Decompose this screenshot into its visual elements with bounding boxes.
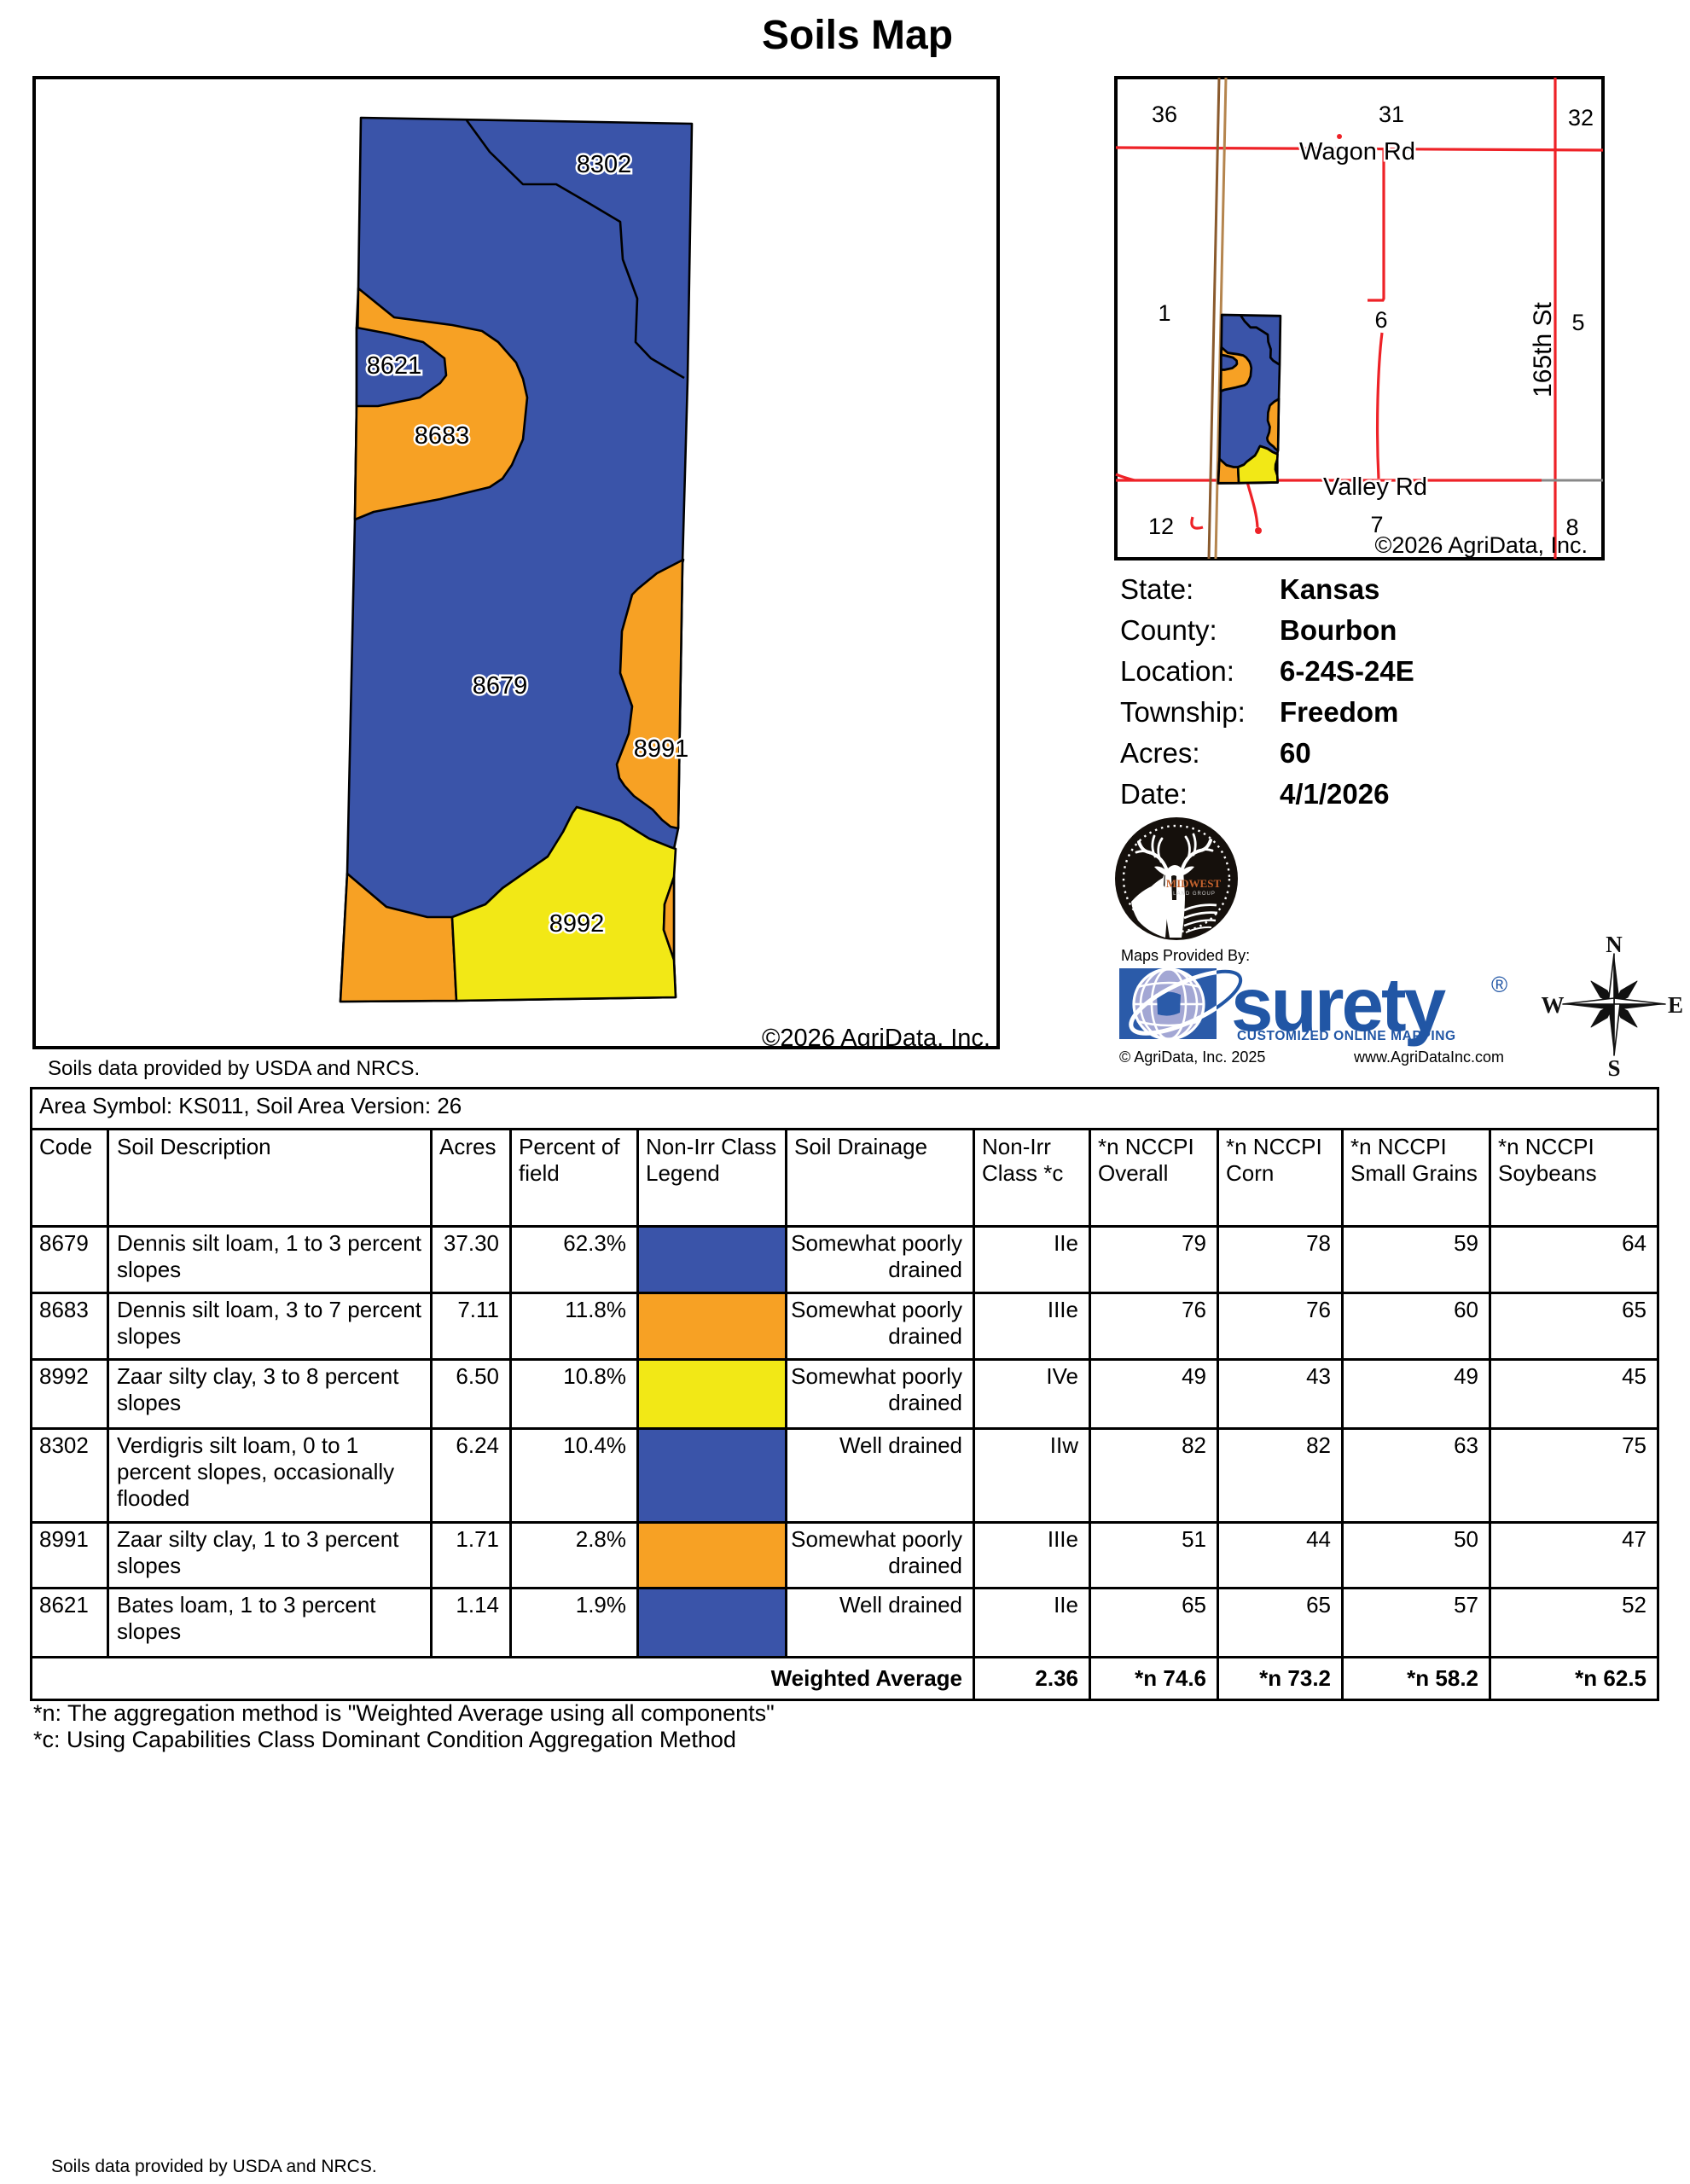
svg-text:©2026 AgriData, Inc.: ©2026 AgriData, Inc. [762, 1025, 990, 1049]
svg-text:S: S [1607, 1055, 1620, 1079]
svg-text:®: ® [1491, 972, 1507, 997]
svg-text:LAND GROUP: LAND GROUP [1173, 892, 1216, 897]
svg-text:Wagon Rd: Wagon Rd [1299, 138, 1415, 166]
svg-text:CUSTOMIZED ONLINE MAPPING: CUSTOMIZED ONLINE MAPPING [1237, 1029, 1456, 1043]
svg-text:165th St: 165th St [1529, 301, 1557, 397]
svg-text:8991: 8991 [634, 735, 689, 763]
svg-text:12: 12 [1148, 514, 1174, 539]
svg-text:5: 5 [1571, 310, 1584, 335]
svg-text:MIDWEST: MIDWEST [1166, 877, 1222, 890]
svg-text:1: 1 [1158, 300, 1170, 326]
svg-text:8992: 8992 [549, 910, 605, 938]
svg-text:N: N [1606, 932, 1623, 957]
svg-text:8302: 8302 [577, 151, 632, 178]
svg-text:36: 36 [1152, 102, 1177, 127]
svg-text:8679: 8679 [473, 672, 528, 700]
svg-text:31: 31 [1379, 102, 1404, 127]
svg-text:8683: 8683 [415, 422, 470, 450]
svg-text:©2026 AgriData, Inc.: ©2026 AgriData, Inc. [1374, 532, 1588, 558]
svg-text:6: 6 [1374, 307, 1387, 333]
svg-text:32: 32 [1568, 105, 1594, 131]
svg-text:E: E [1668, 992, 1683, 1018]
svg-text:Valley Rd: Valley Rd [1323, 473, 1427, 501]
svg-text:W: W [1542, 992, 1565, 1018]
svg-text:8621: 8621 [367, 352, 422, 380]
